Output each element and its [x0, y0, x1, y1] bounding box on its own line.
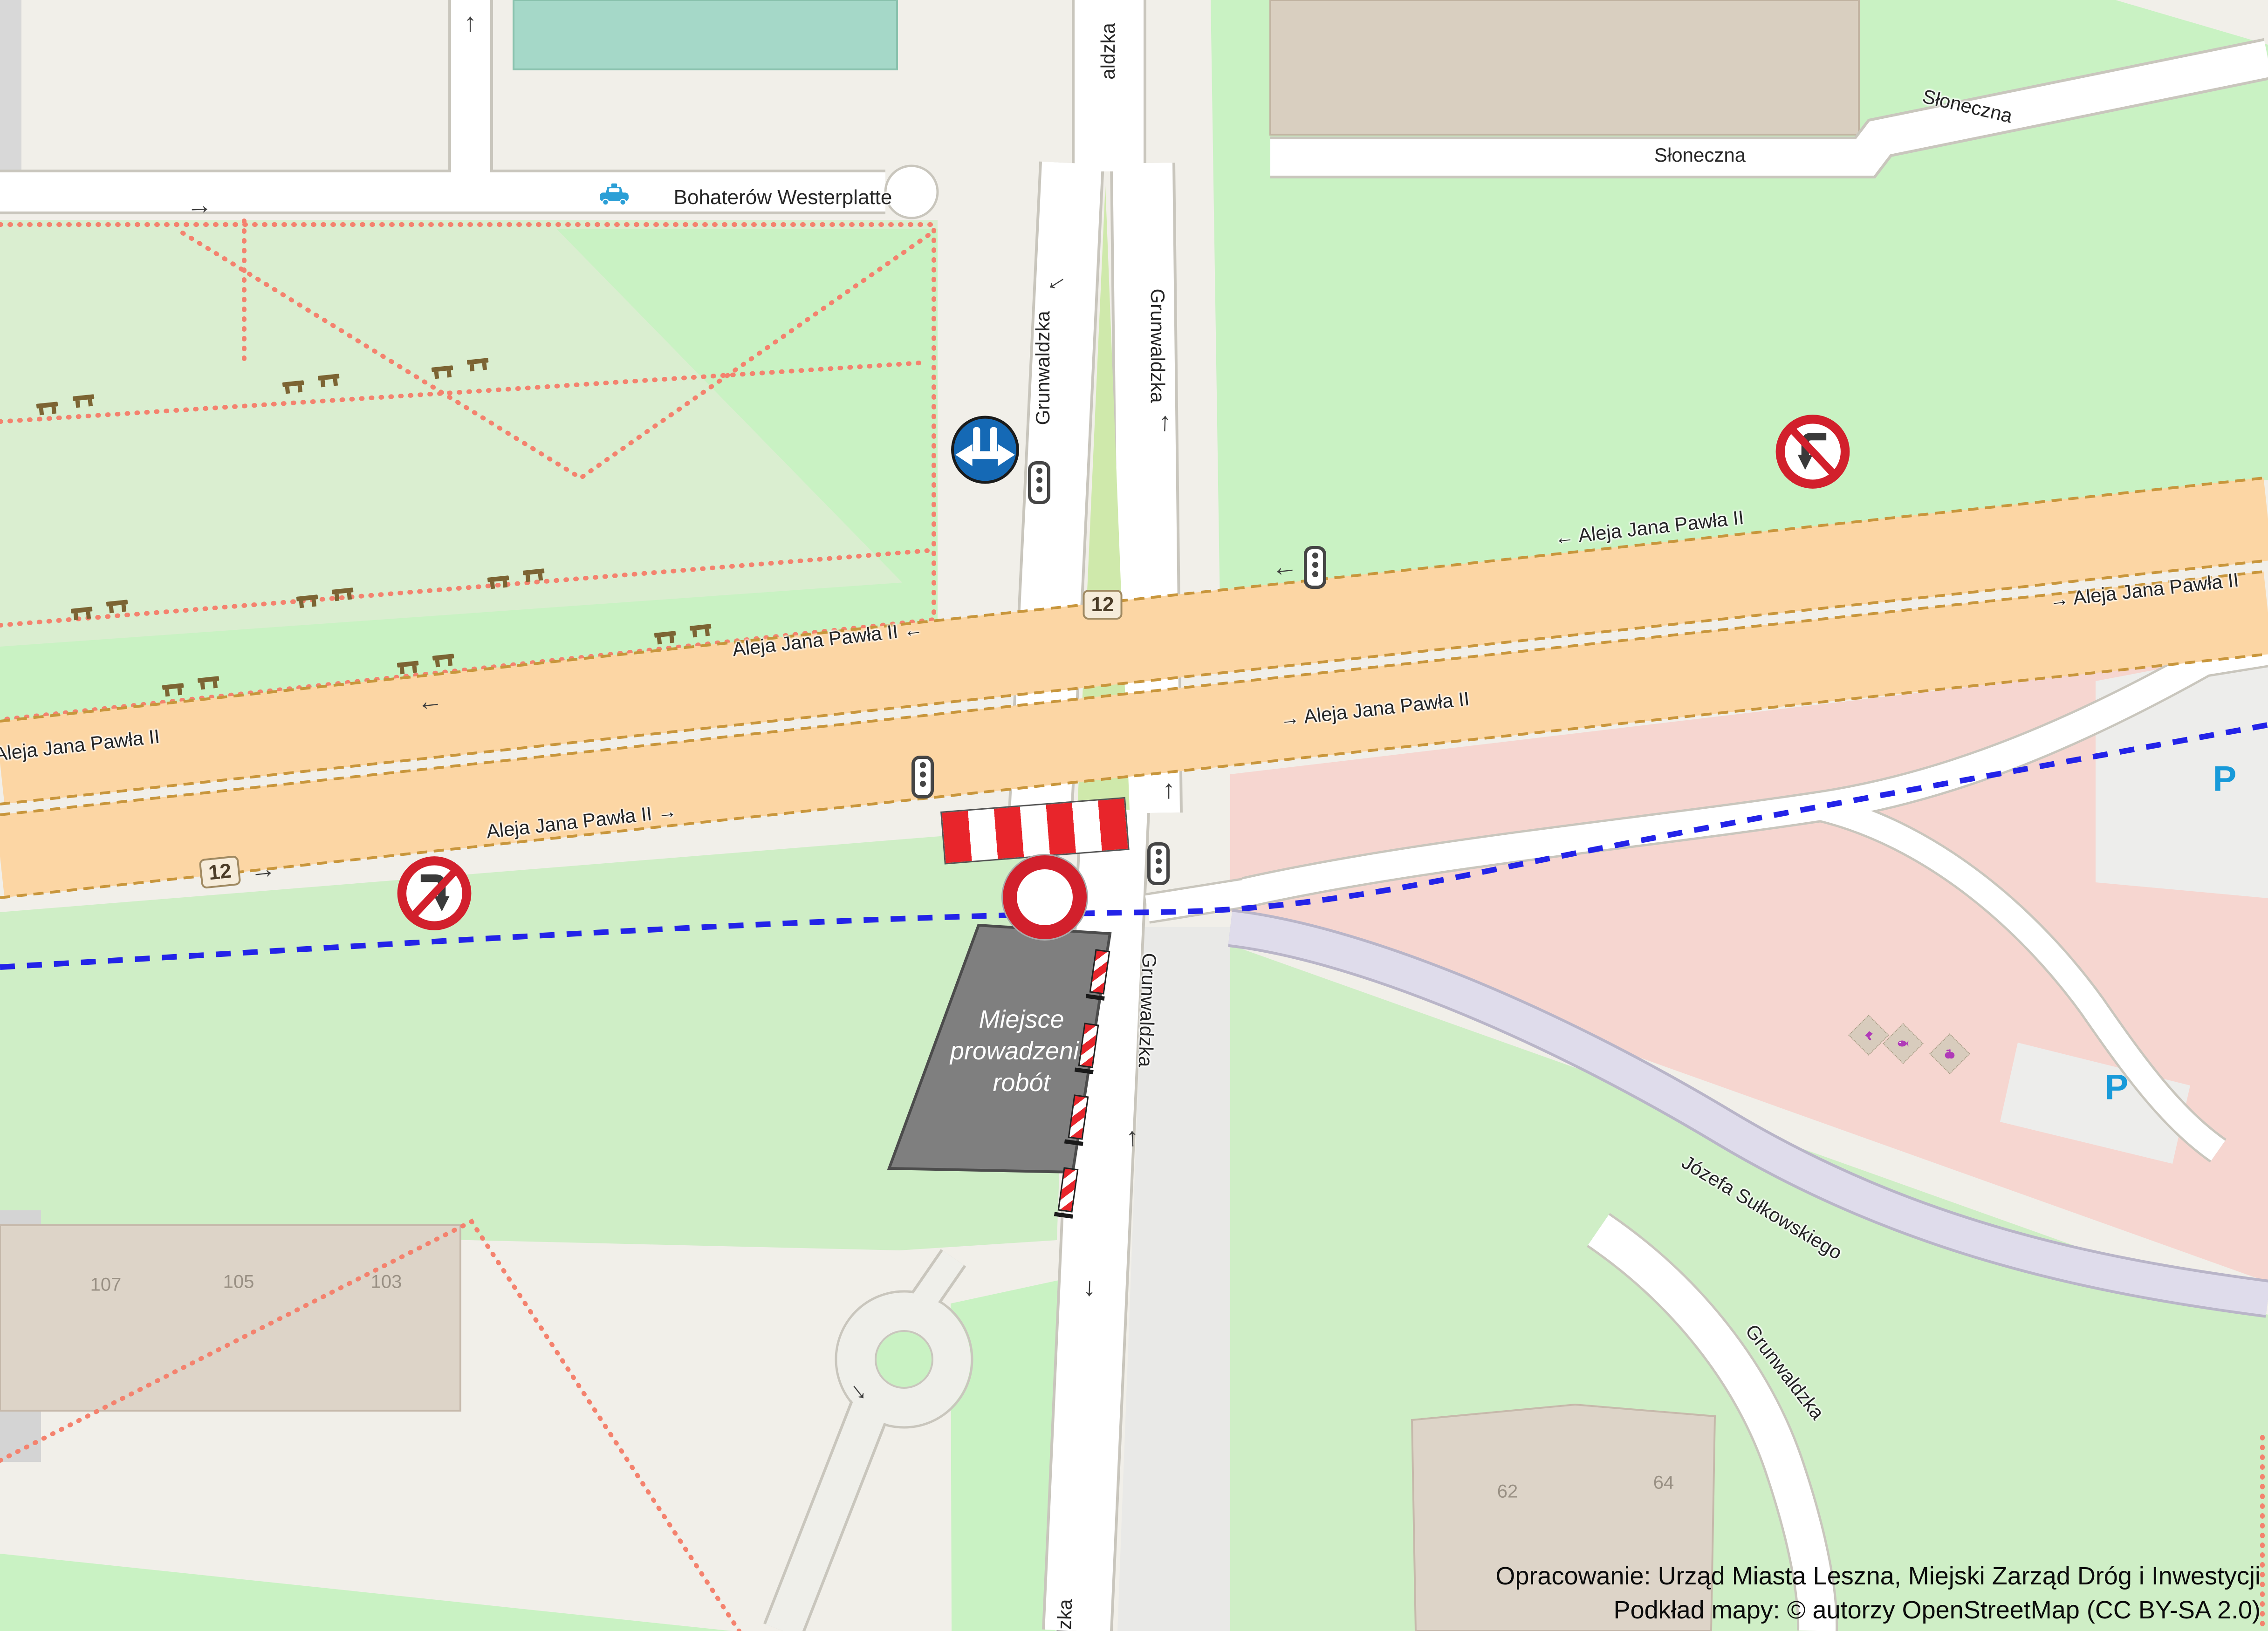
house-number: 64 — [1653, 1473, 1674, 1494]
traffic-signal-icon — [1304, 546, 1326, 589]
bench-icon — [654, 631, 677, 646]
bench-icon — [106, 600, 129, 614]
work-area-line1: Miejsce — [950, 1003, 1093, 1035]
turn-left-or-right-sign-icon — [950, 415, 1021, 488]
bench-icon — [523, 568, 546, 583]
bench-icon — [296, 594, 319, 609]
building — [0, 0, 21, 189]
building-103-107 — [0, 1225, 460, 1411]
traffic-signal-icon — [1147, 842, 1170, 885]
arrow-right-icon: → — [248, 855, 277, 884]
map-viewport[interactable]: Miejsce prowadzenia robót — [0, 0, 2268, 1631]
work-area-line2: prowadzenia — [950, 1035, 1093, 1067]
house-number: 103 — [371, 1272, 402, 1293]
house-number: 105 — [223, 1272, 254, 1293]
bench-icon — [36, 402, 59, 416]
no-vehicles-sign-icon — [1003, 855, 1087, 939]
house-number: 107 — [90, 1275, 122, 1296]
bench-icon — [432, 654, 455, 669]
street-label-bohaterow: Bohaterów Westerplatte — [674, 186, 892, 209]
parking-icon: P — [2213, 759, 2237, 799]
street-label-grunwaldzka: aldzka — [1097, 23, 1119, 79]
arrow-down-icon: ↓ — [1083, 1274, 1096, 1300]
street-label-grunwaldzka: Grunwaldzka — [1032, 311, 1054, 425]
bench-icon — [198, 676, 220, 691]
route-badge-12: 12 — [1083, 590, 1123, 620]
bench-icon — [282, 380, 305, 395]
bench-icon — [332, 587, 355, 602]
street-label-grunwaldzka: Grunwaldzka — [1134, 953, 1161, 1068]
bench-icon — [318, 374, 341, 389]
arrow-left-icon: ← — [415, 686, 444, 715]
parking-icon: P — [2105, 1067, 2129, 1108]
arrow-right-icon: → — [186, 191, 213, 218]
attribution-line1: Opracowanie: Urząd Miasta Leszna, Miejsk… — [1495, 1559, 2261, 1593]
arrow-up-icon: ↑ — [1162, 776, 1175, 802]
no-left-turn-sign-icon — [1775, 414, 1850, 492]
bench-icon — [162, 683, 185, 698]
arrow-up-icon: ↑ — [464, 9, 477, 35]
arrow-up-icon: ↑ — [1158, 409, 1172, 435]
work-area-line3: robót — [950, 1067, 1093, 1099]
bench-icon — [690, 624, 713, 639]
traffic-signal-icon — [1028, 461, 1050, 504]
street-label-grunwaldzka: Grunwaldzka — [1146, 288, 1169, 403]
arrow-up-icon: ↑ — [1125, 1123, 1140, 1150]
route-badge-12: 12 — [199, 855, 241, 889]
bench-icon — [467, 358, 490, 373]
bench-icon — [397, 661, 420, 676]
street-label-sloneczna: Słoneczna — [1654, 144, 1746, 166]
work-area-label: Miejsce prowadzenia robót — [950, 1003, 1093, 1099]
building — [1270, 0, 1859, 135]
roundabout-island — [877, 1332, 932, 1387]
bench-icon — [487, 575, 510, 590]
no-right-turn-sign-icon — [397, 856, 472, 934]
taxi-icon — [599, 183, 630, 209]
map-attribution: Opracowanie: Urząd Miasta Leszna, Miejsk… — [1495, 1559, 2261, 1627]
building-teal — [514, 0, 897, 69]
attribution-line2: Podkład mapy: © autorzy OpenStreetMap (C… — [1495, 1593, 2261, 1627]
map-canvas[interactable] — [0, 0, 2268, 1631]
bench-icon — [71, 607, 94, 621]
bench-icon — [73, 394, 96, 409]
bench-icon — [432, 365, 454, 380]
arrow-left-icon: ← — [1270, 552, 1299, 581]
house-number: 62 — [1497, 1481, 1518, 1502]
cul-de-sac — [885, 166, 938, 218]
traffic-signal-icon — [911, 756, 934, 798]
street-label-grunwaldzka: Grunwaldzka — [1050, 1599, 1077, 1631]
